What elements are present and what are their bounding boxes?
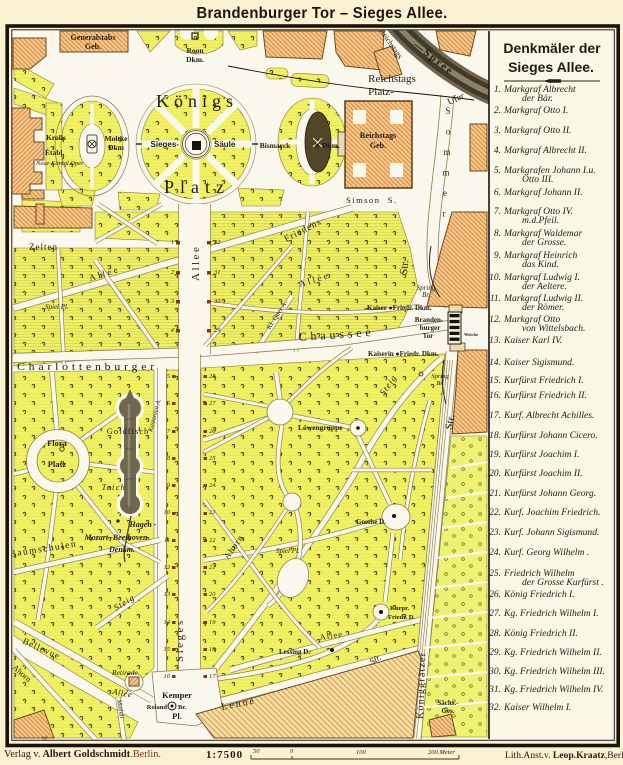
svg-text:Säule: Säule — [214, 140, 236, 149]
svg-text:Spiel Pl.: Spiel Pl. — [45, 303, 69, 311]
svg-text:Spring: Spring — [431, 373, 449, 380]
svg-text:20.: 20. — [489, 469, 501, 479]
svg-text:13: 13 — [164, 591, 171, 598]
svg-text:Hagen -: Hagen - — [129, 520, 157, 529]
svg-text:19: 19 — [209, 619, 216, 626]
svg-text:Kurf. Joachim Friedrich.: Kurf. Joachim Friedrich. — [503, 507, 600, 518]
svg-text:Kg. Friedrich Wilhelm II.: Kg. Friedrich Wilhelm II. — [503, 647, 602, 658]
svg-text:Mozart -Beethoven: Mozart -Beethoven — [84, 533, 148, 542]
svg-text:16.: 16. — [489, 391, 501, 401]
svg-text:29.: 29. — [489, 648, 501, 658]
svg-text:32: 32 — [213, 239, 221, 246]
svg-text:Friedr. D.: Friedr. D. — [388, 614, 415, 621]
svg-text:Geb.: Geb. — [85, 42, 101, 51]
svg-text:Kaiser ●Friedr. Dkm.: Kaiser ●Friedr. Dkm. — [367, 304, 432, 312]
svg-text:Flora: Flora — [47, 438, 68, 448]
svg-text:27: 27 — [209, 400, 216, 407]
svg-text:Branden-: Branden- — [415, 316, 444, 324]
svg-text:Geb.: Geb. — [370, 141, 386, 150]
svg-text:14.: 14. — [489, 358, 501, 368]
svg-text:Kaiser Karl IV.: Kaiser Karl IV. — [503, 335, 562, 346]
svg-text:Moltke: Moltke — [105, 134, 129, 143]
svg-text:Kaiser Wilhelm I.: Kaiser Wilhelm I. — [503, 702, 571, 713]
svg-text:27.: 27. — [489, 609, 501, 619]
svg-text:1:7500: 1:7500 — [206, 749, 243, 761]
svg-text:17: 17 — [209, 673, 216, 680]
svg-text:Roland: Roland — [147, 704, 168, 711]
svg-text:30: 30 — [213, 298, 221, 305]
svg-text:4.: 4. — [494, 146, 501, 156]
svg-text:5.: 5. — [494, 166, 501, 176]
svg-text:✕ Dkm.: ✕ Dkm. — [314, 141, 340, 150]
svg-text:24: 24 — [209, 482, 216, 489]
svg-text:Kg. Friedrich Wilhelm III.: Kg. Friedrich Wilhelm III. — [503, 666, 605, 677]
svg-text:Roon: Roon — [186, 46, 204, 55]
svg-text:25.: 25. — [489, 569, 501, 579]
svg-text:Teich: Teich — [102, 483, 127, 492]
svg-text:Dkm.: Dkm. — [186, 55, 204, 64]
svg-text:Krolls: Krolls — [46, 133, 66, 142]
svg-text:6.: 6. — [494, 188, 501, 198]
svg-text:17.: 17. — [489, 411, 501, 421]
svg-text:11: 11 — [164, 537, 170, 544]
svg-text:Sächs.-: Sächs.- — [437, 699, 459, 707]
svg-text:10.: 10. — [489, 273, 501, 283]
svg-text:Str.: Str. — [398, 259, 411, 275]
svg-text:Br.: Br. — [178, 704, 187, 711]
svg-text:100: 100 — [356, 749, 367, 756]
svg-text:Kaiserin ●Friedr. Dkm.: Kaiserin ●Friedr. Dkm. — [368, 350, 439, 358]
svg-text:26.: 26. — [489, 590, 501, 600]
svg-text:3.: 3. — [493, 126, 501, 136]
svg-text:29: 29 — [214, 327, 221, 334]
svg-text:18.: 18. — [489, 431, 501, 441]
svg-text:der Grosse Kurfürst .: der Grosse Kurfürst . — [522, 577, 604, 588]
svg-text:8.: 8. — [494, 229, 501, 239]
svg-text:28.: 28. — [489, 629, 501, 639]
svg-text:Platz: Platz — [48, 459, 67, 469]
svg-text:15: 15 — [164, 646, 171, 653]
svg-text:Markgraf Otto I.: Markgraf Otto I. — [503, 105, 568, 116]
svg-text:7.: 7. — [494, 207, 501, 217]
svg-text:13.: 13. — [489, 336, 501, 346]
svg-text:18: 18 — [209, 646, 216, 653]
svg-text:12: 12 — [164, 564, 171, 571]
svg-text:Lith.Anst.v. Leop.Kraatz,Berli: Lith.Anst.v. Leop.Kraatz,Berlin. — [505, 750, 623, 761]
svg-text:1: 1 — [171, 239, 174, 246]
svg-text:Kurfürst Johann Georg.: Kurfürst Johann Georg. — [503, 488, 596, 499]
svg-text:20: 20 — [209, 591, 216, 598]
svg-text:12.: 12. — [489, 315, 501, 325]
svg-text:Kurfürst Friedrich I.: Kurfürst Friedrich I. — [503, 375, 584, 386]
svg-text:Simson S.: Simson S. — [346, 195, 398, 205]
svg-text:Weiche: Weiche — [464, 332, 478, 337]
svg-text:200.Meter: 200.Meter — [428, 749, 455, 756]
svg-text:Bismarck: Bismarck — [260, 141, 292, 150]
svg-text:Markgraf Johann II.: Markgraf Johann II. — [503, 187, 583, 198]
svg-text:22.: 22. — [489, 508, 501, 518]
svg-text:Kurf. Albrecht Achilles.: Kurf. Albrecht Achilles. — [503, 410, 594, 421]
svg-text:Br.: Br. — [436, 380, 444, 387]
svg-text:Kurfürst Friedrich II.: Kurfürst Friedrich II. — [503, 390, 587, 401]
svg-text:22: 22 — [209, 537, 216, 544]
svg-text:21.: 21. — [489, 489, 501, 499]
svg-text:Kurfürst Johann Cicero.: Kurfürst Johann Cicero. — [503, 430, 598, 441]
svg-text:der Bär.: der Bär. — [522, 93, 553, 104]
svg-text:Kurfürst Joachim II.: Kurfürst Joachim II. — [503, 468, 583, 479]
svg-text:19.: 19. — [489, 450, 501, 460]
svg-text:Sieges: Sieges — [174, 618, 186, 662]
svg-text:Pl.: Pl. — [172, 711, 182, 721]
svg-text:Sieges Allee.: Sieges Allee. — [508, 59, 594, 75]
svg-text:Königgrätzer: Königgrätzer — [415, 652, 428, 719]
svg-text:Goldfisch: Goldfisch — [107, 426, 150, 436]
svg-text:1.: 1. — [494, 85, 501, 95]
svg-text:15.: 15. — [489, 376, 501, 386]
svg-text:31.: 31. — [488, 685, 501, 695]
svg-text:der Römer.: der Römer. — [522, 302, 564, 313]
svg-text:9.: 9. — [494, 251, 501, 261]
svg-text:Goethe D.: Goethe D. — [356, 518, 386, 526]
svg-text:Ges.: Ges. — [441, 707, 454, 715]
svg-text:21: 21 — [209, 564, 216, 571]
svg-text:25: 25 — [209, 455, 216, 462]
svg-text:Kaiser Sigismund.: Kaiser Sigismund. — [503, 357, 574, 368]
svg-text:Zelten: Zelten — [29, 242, 58, 252]
svg-text:Kemper: Kemper — [162, 690, 192, 700]
svg-text:Markgraf Otto II.: Markgraf Otto II. — [503, 125, 571, 136]
svg-text:Otto III.: Otto III. — [522, 174, 553, 185]
svg-text:Sieges-: Sieges- — [151, 140, 180, 149]
svg-text:26: 26 — [209, 428, 216, 435]
svg-text:Denkm.: Denkm. — [108, 545, 135, 554]
svg-text:Königs: Königs — [156, 91, 238, 111]
svg-text:30.: 30. — [488, 667, 501, 677]
svg-text:Br.: Br. — [422, 291, 430, 299]
svg-text:24.: 24. — [489, 548, 501, 558]
svg-text:Löwengruppe: Löwengruppe — [298, 423, 343, 432]
svg-text:11.: 11. — [490, 294, 501, 304]
svg-text:Dkm: Dkm — [108, 143, 125, 152]
svg-text:Lessing D.: Lessing D. — [279, 648, 310, 656]
svg-text:Spiel Pl.: Spiel Pl. — [276, 547, 300, 555]
svg-text:Brandenburger Tor – Sieges All: Brandenburger Tor – Sieges Allee. — [197, 5, 448, 22]
svg-text:Reichstags: Reichstags — [368, 73, 416, 85]
svg-text:Kurf. Johann Sigismund.: Kurf. Johann Sigismund. — [503, 527, 599, 538]
svg-text:Allee: Allee — [190, 245, 202, 281]
svg-text:32.: 32. — [488, 703, 501, 713]
svg-text:23: 23 — [209, 509, 216, 516]
svg-text:Kurfürst Joachim I.: Kurfürst Joachim I. — [503, 449, 579, 460]
svg-text:14: 14 — [164, 619, 171, 626]
svg-text:König Friedrich I.: König Friedrich I. — [503, 589, 575, 600]
svg-text:23.: 23. — [489, 528, 501, 538]
svg-text:50: 50 — [253, 748, 260, 755]
svg-text:Retirade: Retirade — [111, 668, 138, 677]
svg-text:16: 16 — [164, 673, 171, 680]
svg-text:Denkmäler der: Denkmäler der — [503, 40, 601, 56]
svg-text:Kg. Friedrich Wilhelm I.: Kg. Friedrich Wilhelm I. — [503, 608, 599, 619]
svg-text:Platz-: Platz- — [368, 86, 394, 98]
svg-text:Kg. Friedrich Wilhelm IV.: Kg. Friedrich Wilhelm IV. — [503, 684, 603, 695]
svg-text:2.: 2. — [494, 106, 501, 116]
svg-text:m.d.Pfeil.: m.d.Pfeil. — [522, 215, 559, 226]
svg-text:Tor: Tor — [423, 332, 434, 340]
svg-text:König Friedrich II.: König Friedrich II. — [503, 628, 578, 639]
svg-text:Neue Königl.Oper: Neue Königl.Oper — [35, 160, 84, 167]
svg-text:Verlag v. Albert Goldschmidt.B: Verlag v. Albert Goldschmidt.Berlin. — [4, 748, 161, 760]
svg-text:Markgraf Albrecht II.: Markgraf Albrecht II. — [503, 145, 587, 156]
svg-text:28: 28 — [209, 373, 216, 380]
svg-text:Platz: Platz — [164, 177, 230, 197]
svg-text:31: 31 — [213, 269, 221, 276]
svg-text:Kurpr.: Kurpr. — [390, 605, 409, 612]
svg-text:Reichstags: Reichstags — [360, 131, 396, 140]
svg-text:von Wittelsbach.: von Wittelsbach. — [522, 323, 585, 334]
svg-text:der Grosse.: der Grosse. — [522, 237, 566, 248]
svg-text:burger: burger — [420, 324, 441, 332]
svg-text:Kurf. Georg Wilhelm .: Kurf. Georg Wilhelm . — [503, 547, 589, 558]
svg-text:das Kind.: das Kind. — [522, 259, 559, 270]
svg-text:Generalstabs: Generalstabs — [71, 33, 116, 42]
svg-text:der Aeltere.: der Aeltere. — [522, 281, 567, 292]
svg-text:Établ.: Établ. — [45, 147, 65, 157]
svg-text:10: 10 — [164, 509, 171, 516]
svg-text:Charlottenburger: Charlottenburger — [17, 361, 158, 373]
